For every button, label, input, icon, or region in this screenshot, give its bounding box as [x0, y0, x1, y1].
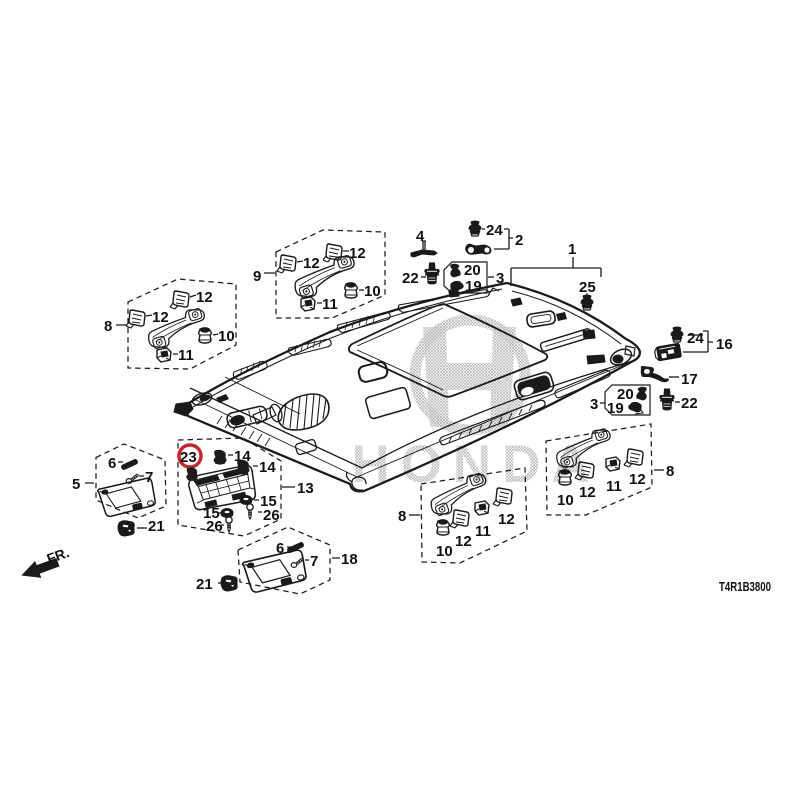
svg-text:6: 6	[108, 455, 116, 472]
svg-text:19: 19	[607, 400, 624, 417]
svg-text:6: 6	[276, 540, 284, 557]
svg-text:9: 9	[253, 268, 261, 285]
svg-text:1: 1	[568, 241, 576, 258]
svg-text:12: 12	[498, 511, 515, 528]
svg-text:17: 17	[681, 371, 698, 388]
svg-text:26: 26	[263, 507, 280, 524]
svg-text:11: 11	[178, 347, 194, 364]
svg-text:10: 10	[218, 328, 235, 345]
svg-text:T4R1B3800: T4R1B3800	[719, 580, 771, 594]
svg-text:5: 5	[72, 476, 80, 493]
svg-text:10: 10	[364, 283, 381, 300]
svg-text:18: 18	[341, 551, 358, 568]
svg-text:26: 26	[206, 518, 223, 535]
svg-text:24: 24	[687, 330, 704, 347]
svg-text:13: 13	[297, 480, 314, 497]
svg-text:12: 12	[303, 255, 320, 272]
svg-text:8: 8	[398, 508, 406, 525]
svg-text:14: 14	[259, 459, 276, 476]
svg-text:12: 12	[629, 471, 646, 488]
svg-text:20: 20	[464, 262, 481, 279]
svg-text:22: 22	[402, 270, 419, 287]
svg-text:8: 8	[104, 318, 112, 335]
svg-text:2: 2	[515, 232, 523, 249]
svg-text:12: 12	[349, 245, 366, 262]
svg-text:19: 19	[465, 278, 482, 295]
svg-text:12: 12	[455, 533, 472, 550]
svg-text:12: 12	[579, 484, 596, 501]
svg-text:3: 3	[590, 396, 598, 413]
svg-text:8: 8	[666, 463, 674, 480]
svg-text:21: 21	[196, 576, 213, 593]
svg-text:12: 12	[196, 289, 213, 306]
svg-text:3: 3	[496, 270, 504, 287]
svg-text:11: 11	[322, 296, 338, 313]
svg-text:14: 14	[234, 448, 251, 465]
svg-text:22: 22	[681, 395, 698, 412]
svg-text:23: 23	[180, 449, 197, 466]
svg-text:7: 7	[310, 553, 318, 570]
svg-text:11: 11	[606, 478, 622, 495]
svg-text:24: 24	[486, 222, 503, 239]
svg-text:21: 21	[148, 518, 165, 535]
svg-text:7: 7	[145, 469, 153, 486]
svg-text:11: 11	[475, 523, 491, 540]
svg-text:12: 12	[152, 309, 169, 326]
svg-text:25: 25	[579, 279, 596, 296]
svg-text:10: 10	[557, 492, 574, 509]
svg-text:10: 10	[436, 543, 453, 560]
svg-text:16: 16	[716, 336, 733, 353]
svg-text:4: 4	[416, 228, 425, 245]
